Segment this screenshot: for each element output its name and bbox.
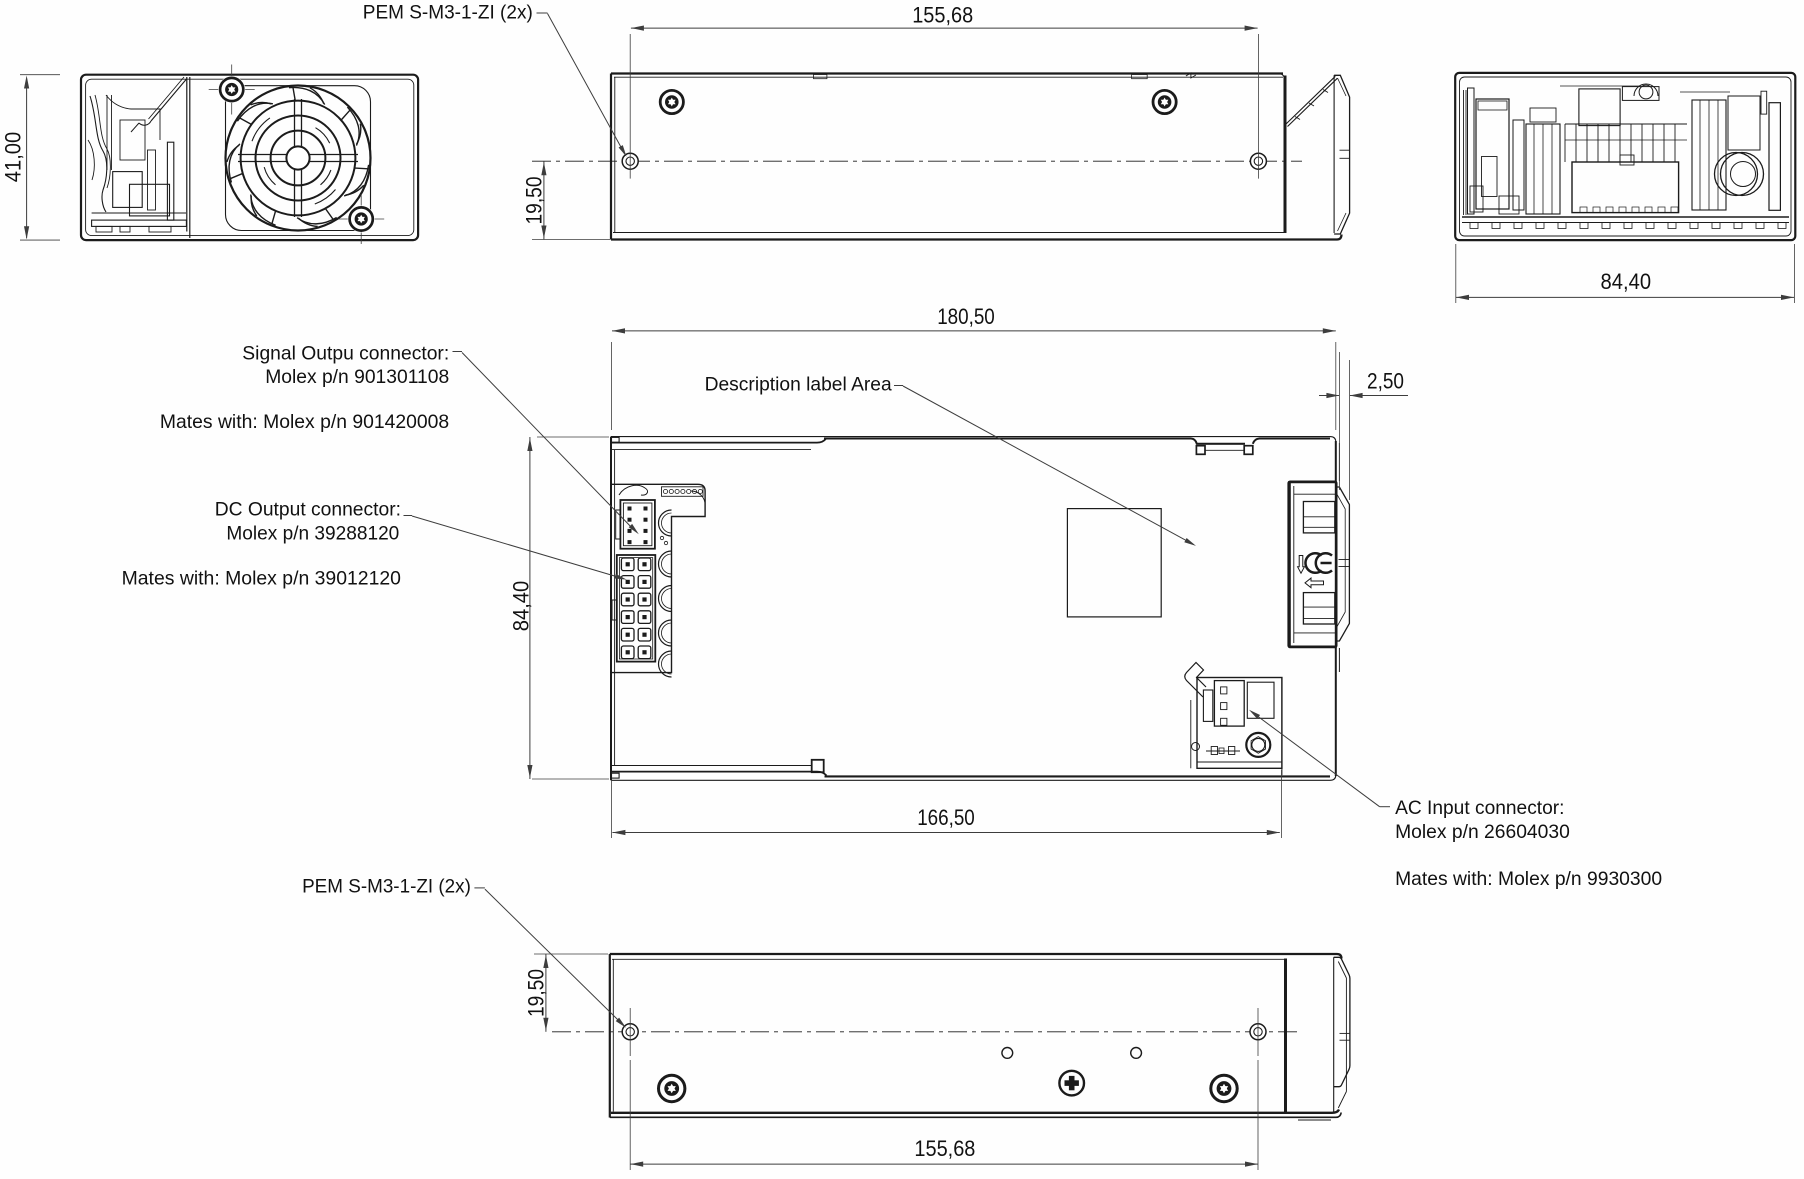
svg-text:84,40: 84,40 (1601, 269, 1652, 294)
svg-text:84,40: 84,40 (509, 581, 534, 632)
svg-text:Mates with: Molex p/n 90142000: Mates with: Molex p/n 901420008 (160, 411, 449, 433)
svg-text:41,00: 41,00 (1, 132, 26, 183)
svg-text:155,68: 155,68 (914, 1136, 975, 1161)
svg-text:Mates with: Molex p/n 39012120: Mates with: Molex p/n 39012120 (122, 567, 402, 589)
svg-text:19,50: 19,50 (522, 177, 547, 225)
svg-text:Molex p/n 901301108: Molex p/n 901301108 (265, 366, 449, 388)
svg-text:Molex p/n 39288120: Molex p/n 39288120 (226, 523, 399, 545)
svg-text:DC Output connector:: DC Output connector: (215, 499, 401, 521)
svg-text:PEM S-M3-1-ZI (2x): PEM S-M3-1-ZI (2x) (302, 876, 471, 898)
svg-text:PEM S-M3-1-ZI (2x): PEM S-M3-1-ZI (2x) (363, 2, 533, 24)
svg-text:2,50: 2,50 (1367, 369, 1404, 394)
svg-text:166,50: 166,50 (917, 805, 975, 830)
svg-text:AC Input connector:: AC Input connector: (1395, 797, 1564, 819)
svg-text:Description label Area: Description label Area (705, 374, 892, 396)
svg-text:Mates with: Molex p/n 9930300: Mates with: Molex p/n 9930300 (1395, 868, 1662, 890)
svg-text:155,68: 155,68 (912, 3, 973, 28)
svg-text:Signal Outpu connector:: Signal Outpu connector: (242, 342, 449, 364)
svg-text:180,50: 180,50 (937, 304, 995, 329)
svg-text:Molex p/n 26604030: Molex p/n 26604030 (1395, 821, 1570, 843)
svg-text:19,50: 19,50 (524, 969, 549, 1017)
